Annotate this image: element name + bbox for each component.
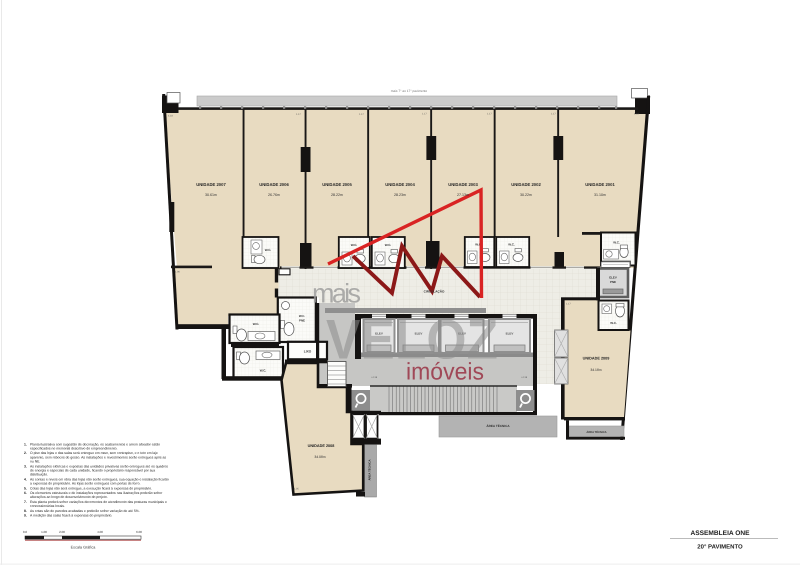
svg-text:a expensas do proprietário. As: a expensas do proprietário. As lojas ser… — [30, 482, 141, 486]
svg-text:especificados no memorial desc: especificados no memorial descritivo do … — [30, 447, 118, 451]
svg-text:mais: mais — [312, 279, 361, 309]
svg-text:3.: 3. — [24, 464, 27, 468]
svg-text:31.10m: 31.10m — [594, 193, 606, 197]
svg-text:imóveis: imóveis — [406, 359, 484, 386]
svg-text:W.C.: W.C. — [613, 241, 620, 245]
svg-text:8.: 8. — [24, 509, 27, 513]
svg-text:1.06: 1.06 — [175, 271, 180, 274]
svg-text:4.00: 4.00 — [97, 530, 103, 534]
svg-text:6.00: 6.00 — [136, 530, 142, 534]
svg-text:ou NE.: ou NE. — [30, 460, 40, 464]
svg-text:W.C.: W.C. — [253, 322, 260, 326]
svg-text:ELEV: ELEV — [506, 332, 514, 336]
svg-text:W.C.: W.C. — [260, 369, 267, 373]
svg-text:UNIDADE 2003: UNIDADE 2003 — [448, 182, 478, 187]
svg-text:20° PAVIMENTO: 20° PAVIMENTO — [697, 544, 743, 551]
svg-text:W.C.: W.C. — [610, 321, 617, 325]
svg-text:28.22m: 28.22m — [331, 193, 343, 197]
svg-text:Cotas das lojas não será entre: Cotas das lojas não será entregue, a exe… — [30, 486, 152, 490]
svg-text:9.: 9. — [24, 514, 27, 518]
svg-text:34.18m: 34.18m — [590, 368, 601, 372]
svg-text:UNIDADE 2001: UNIDADE 2001 — [585, 182, 615, 187]
svg-text:1.05: 1.05 — [294, 488, 299, 491]
svg-text:1.17: 1.17 — [422, 113, 427, 116]
svg-text:W.C.: W.C. — [508, 243, 515, 247]
svg-text:1.17: 1.17 — [359, 113, 364, 116]
svg-text:PNE: PNE — [610, 280, 616, 284]
svg-text:30.22m: 30.22m — [520, 193, 532, 197]
svg-text:ASSEMBLEIA ONE: ASSEMBLEIA ONE — [690, 530, 750, 537]
svg-text:6.: 6. — [24, 491, 27, 495]
svg-text:A medição das salas ficará à e: A medição das salas ficará à expensas do… — [30, 514, 112, 518]
svg-text:UNIDADE 2006: UNIDADE 2006 — [259, 182, 289, 187]
svg-text:2.: 2. — [24, 451, 27, 455]
svg-text:UNIDADE 2004: UNIDADE 2004 — [385, 182, 415, 187]
svg-text:de energia e especiais de cada: de energia e especiais de cada unidade, … — [30, 469, 155, 473]
svg-text:W.C.: W.C. — [385, 243, 392, 247]
svg-text:alterações ao longo do desenvo: alterações ao longo do desenvolvimento d… — [30, 495, 108, 499]
svg-text:ELEV: ELEV — [609, 276, 617, 280]
svg-text:ÁREA TÉCNICA: ÁREA TÉCNICA — [486, 424, 510, 428]
svg-text:ÁREA TÉCNICA: ÁREA TÉCNICA — [586, 430, 606, 434]
svg-text:1.17: 1.17 — [296, 113, 301, 116]
svg-text:1.17: 1.17 — [551, 113, 556, 116]
svg-text:LIXO: LIXO — [304, 350, 312, 354]
svg-text:UNIDADE 2007: UNIDADE 2007 — [196, 182, 226, 187]
svg-text:4.: 4. — [24, 477, 27, 481]
svg-text:concessionárias locais.: concessionárias locais. — [30, 504, 65, 508]
svg-text:W.C.: W.C. — [351, 243, 358, 247]
svg-text:34.08m: 34.08m — [314, 455, 325, 459]
svg-text:1.17: 1.17 — [566, 303, 571, 306]
svg-text:5.: 5. — [24, 486, 27, 490]
svg-text:mais 7° ao 17° pavimento: mais 7° ao 17° pavimento — [391, 89, 428, 93]
svg-text:4.18: 4.18 — [168, 115, 173, 118]
svg-text:4.18: 4.18 — [634, 113, 639, 116]
svg-text:As cotas são de paredes acabad: As cotas são de paredes acabadas e poder… — [30, 509, 140, 513]
svg-text:1.00: 1.00 — [41, 530, 47, 534]
svg-text:1.17: 1.17 — [487, 113, 492, 116]
svg-text:28.23m: 28.23m — [394, 193, 406, 197]
svg-text:+4.18: +4.18 — [371, 376, 378, 379]
svg-text:27.13m: 27.13m — [457, 193, 469, 197]
svg-text:UNIDADE 2005: UNIDADE 2005 — [322, 182, 352, 187]
svg-text:+4.18: +4.18 — [521, 376, 528, 379]
svg-text:W.C.: W.C. — [299, 314, 305, 318]
svg-text:ÁREA TÉCNICA: ÁREA TÉCNICA — [368, 459, 372, 480]
svg-text:30.61m: 30.61m — [205, 193, 217, 197]
svg-text:CIRCULAÇÃO: CIRCULAÇÃO — [424, 290, 445, 294]
svg-text:Escala Gráfica: Escala Gráfica — [71, 546, 97, 550]
svg-text:0.0: 0.0 — [23, 530, 28, 534]
svg-text:2.00: 2.00 — [59, 530, 65, 534]
svg-text:UNIDADE 2002: UNIDADE 2002 — [511, 182, 541, 187]
svg-text:UNIDADE 2008: UNIDADE 2008 — [308, 444, 335, 448]
svg-text:aparente, sem rebocos de gesso: aparente, sem rebocos de gesso. As insta… — [30, 455, 166, 459]
svg-text:W.C.: W.C. — [265, 248, 272, 252]
svg-text:PNE: PNE — [299, 319, 305, 323]
svg-text:1.: 1. — [24, 443, 27, 447]
svg-text:26.76m: 26.76m — [268, 193, 280, 197]
svg-text:UNIDADE 2009: UNIDADE 2009 — [583, 357, 610, 361]
svg-text:distribuição.: distribuição. — [30, 473, 48, 477]
svg-text:7.: 7. — [24, 500, 27, 504]
